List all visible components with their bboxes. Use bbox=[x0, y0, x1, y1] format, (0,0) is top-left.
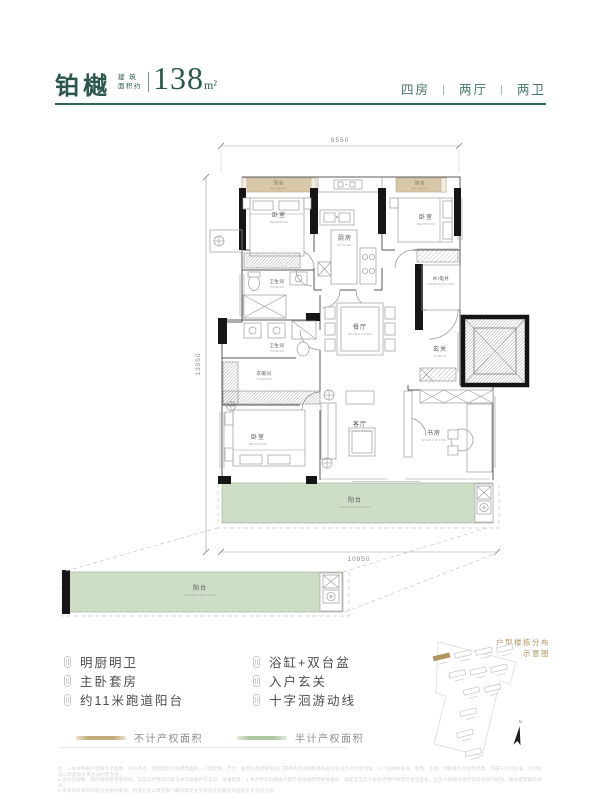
spec-halls: 两厅 bbox=[459, 83, 488, 97]
feature-label: 十字洄游动线 bbox=[269, 690, 356, 709]
floorplan-page: 铂樾 建 筑 面积约 138m² 四房丨两厅丨两卫 9550 bbox=[0, 0, 600, 800]
area-unit: m² bbox=[204, 78, 217, 92]
cloakroom-en: CLOAKROOM bbox=[257, 378, 272, 381]
elevator-shaft bbox=[463, 317, 527, 385]
disclaimer-line: 注：1.本页所载户型图为示意图，仅供参考，所示面积均为建筑面积，户型结构、尺寸、… bbox=[58, 766, 542, 777]
balcony-detached: 阳台 GARDEN BALCONY bbox=[62, 570, 349, 616]
dim-top: 9550 bbox=[331, 137, 349, 144]
spec-baths: 两卫 bbox=[517, 83, 546, 97]
dim-left: 13950 bbox=[195, 352, 202, 375]
legend-divider bbox=[60, 747, 347, 748]
bath1-cn: 卫生间 bbox=[270, 278, 285, 285]
bedroom-master-cn: 卧室 bbox=[251, 433, 265, 441]
dining-en: DINING ROOM bbox=[348, 332, 373, 336]
bay-left-cn: 飘窗 bbox=[274, 180, 284, 187]
bath1-en: BATHROOM bbox=[270, 286, 283, 289]
feature-label: 明厨明卫 bbox=[80, 652, 138, 671]
north-arrow-icon: N bbox=[514, 719, 525, 746]
bath2-en: BATHROOM bbox=[270, 350, 283, 353]
spec-rooms: 四房 bbox=[401, 83, 430, 97]
utility-well: 水/电井 WATER/ELECTRIC WELL bbox=[417, 249, 460, 339]
study-en: STUDY ROOM bbox=[422, 438, 446, 442]
legend-swatch-halfproperty bbox=[237, 736, 287, 740]
bedroom-tr-en: BEDROOM bbox=[417, 222, 435, 226]
feature-bullet-icon bbox=[253, 656, 260, 668]
legend-label-nonproperty: 不计产权面积 bbox=[134, 730, 203, 745]
balcony2-label-cn: 阳台 bbox=[193, 584, 207, 592]
bay-window-right: 飘窗 BAY WINDOW bbox=[396, 178, 446, 192]
floorplan-drawing: 9550 13950 10950 阳台 GARDEN BALCONY bbox=[0, 125, 600, 635]
legend-label-halfproperty: 半计产权面积 bbox=[295, 730, 364, 745]
area-value: 138m² bbox=[153, 60, 217, 97]
building-locator-map: 户型楼栋分布 示意图 bbox=[418, 632, 583, 787]
disclaimer: 注：1.本页所载户型图为示意图，仅供参考，所示面积均为建筑面积，户型结构、尺寸、… bbox=[58, 766, 542, 794]
feature-label: 浴缸+双台盆 bbox=[269, 652, 351, 671]
siteplan-title-line1: 户型楼栋分布 bbox=[496, 637, 550, 647]
bedroom-tr-cn: 卧室 bbox=[419, 213, 433, 221]
living-cn: 客厅 bbox=[353, 420, 367, 428]
well-label-en: WATER/ELECTRIC WELL bbox=[428, 283, 456, 286]
kitchen-top-platform bbox=[318, 177, 382, 192]
area-label-line1: 建 筑 bbox=[118, 74, 142, 83]
study-cn: 书房 bbox=[427, 429, 441, 437]
living-en: LIVING ROOM bbox=[348, 429, 372, 433]
feature-bullet-icon bbox=[64, 656, 71, 668]
bay-window-left: 飘窗 BAY WINDOW bbox=[242, 178, 316, 192]
disclaimer-line: 3.因设计调整、政府规划变更等原因，实际交付情况可能与本示意图存在差异，敬请留意… bbox=[58, 777, 542, 788]
legend-swatch-nonproperty bbox=[76, 736, 126, 740]
well-label-cn: 水/电井 bbox=[433, 275, 450, 282]
dining-cn: 餐厅 bbox=[353, 323, 367, 331]
balcony-label-en: GARDEN BALCONY bbox=[338, 505, 371, 509]
spec-separator: 丨 bbox=[496, 85, 509, 97]
feature-item: 明厨明卫 bbox=[64, 652, 138, 671]
kitchen-en: KITCHEN bbox=[337, 243, 353, 247]
balcony2-label-en: GARDEN BALCONY bbox=[183, 593, 216, 597]
porch-en: PORCH bbox=[434, 354, 447, 358]
feature-label: 主卧套房 bbox=[80, 671, 138, 690]
north-label: N bbox=[518, 719, 522, 724]
bay-right-en: BAY WINDOW bbox=[412, 188, 429, 191]
header-rule bbox=[55, 103, 546, 105]
balcony-label-cn: 阳台 bbox=[348, 496, 362, 504]
bath2-cn: 卫生间 bbox=[270, 342, 285, 349]
feature-bullet-icon bbox=[253, 694, 260, 706]
feature-label: 约11米跑道阳台 bbox=[80, 690, 184, 709]
cloakroom-cn: 衣帽间 bbox=[257, 370, 272, 377]
area-label: 建 筑 面积约 bbox=[118, 74, 142, 91]
feature-item: 浴缸+双台盆 bbox=[253, 652, 351, 671]
feature-label: 入户玄关 bbox=[269, 671, 327, 690]
feature-bullet-icon bbox=[64, 675, 71, 687]
bay-right-cn: 飘窗 bbox=[415, 180, 425, 187]
spec-separator: 丨 bbox=[438, 85, 451, 97]
feature-item: 入户玄关 bbox=[253, 671, 327, 690]
porch-cn: 玄关 bbox=[433, 345, 447, 353]
bay-left-en: BAY WINDOW bbox=[271, 188, 288, 191]
bedroom-master-en: BEDROOM bbox=[249, 442, 267, 446]
dim-bottom: 10950 bbox=[347, 556, 370, 563]
feature-item: 主卧套房 bbox=[64, 671, 138, 690]
bedroom-tl-cn: 卧室 bbox=[272, 211, 286, 219]
balcony-main: 阳台 GARDEN BALCONY bbox=[218, 483, 499, 528]
project-title: 铂樾 bbox=[55, 66, 111, 101]
feature-bullet-icon bbox=[253, 675, 260, 687]
bedroom-tl-en: BEDROOM bbox=[270, 220, 288, 224]
area-label-line2: 面积约 bbox=[118, 83, 142, 92]
highlighted-building bbox=[433, 653, 451, 662]
siteplan-title-line2: 示意图 bbox=[523, 648, 550, 658]
unit-spec: 四房丨两厅丨两卫 bbox=[401, 79, 546, 98]
disclaimer-line: 5.本资料所发布内容仅为要约邀请，相关信息以政府部门最终审定文件及双方签署的商品… bbox=[58, 788, 542, 794]
area-divider bbox=[148, 72, 149, 92]
feature-item: 约11米跑道阳台 bbox=[64, 690, 184, 709]
feature-item: 十字洄游动线 bbox=[253, 690, 356, 709]
feature-bullet-icon bbox=[64, 694, 71, 706]
area-legend: 不计产权面积 半计产权面积 bbox=[76, 730, 364, 745]
kitchen-cn: 厨房 bbox=[338, 234, 352, 242]
